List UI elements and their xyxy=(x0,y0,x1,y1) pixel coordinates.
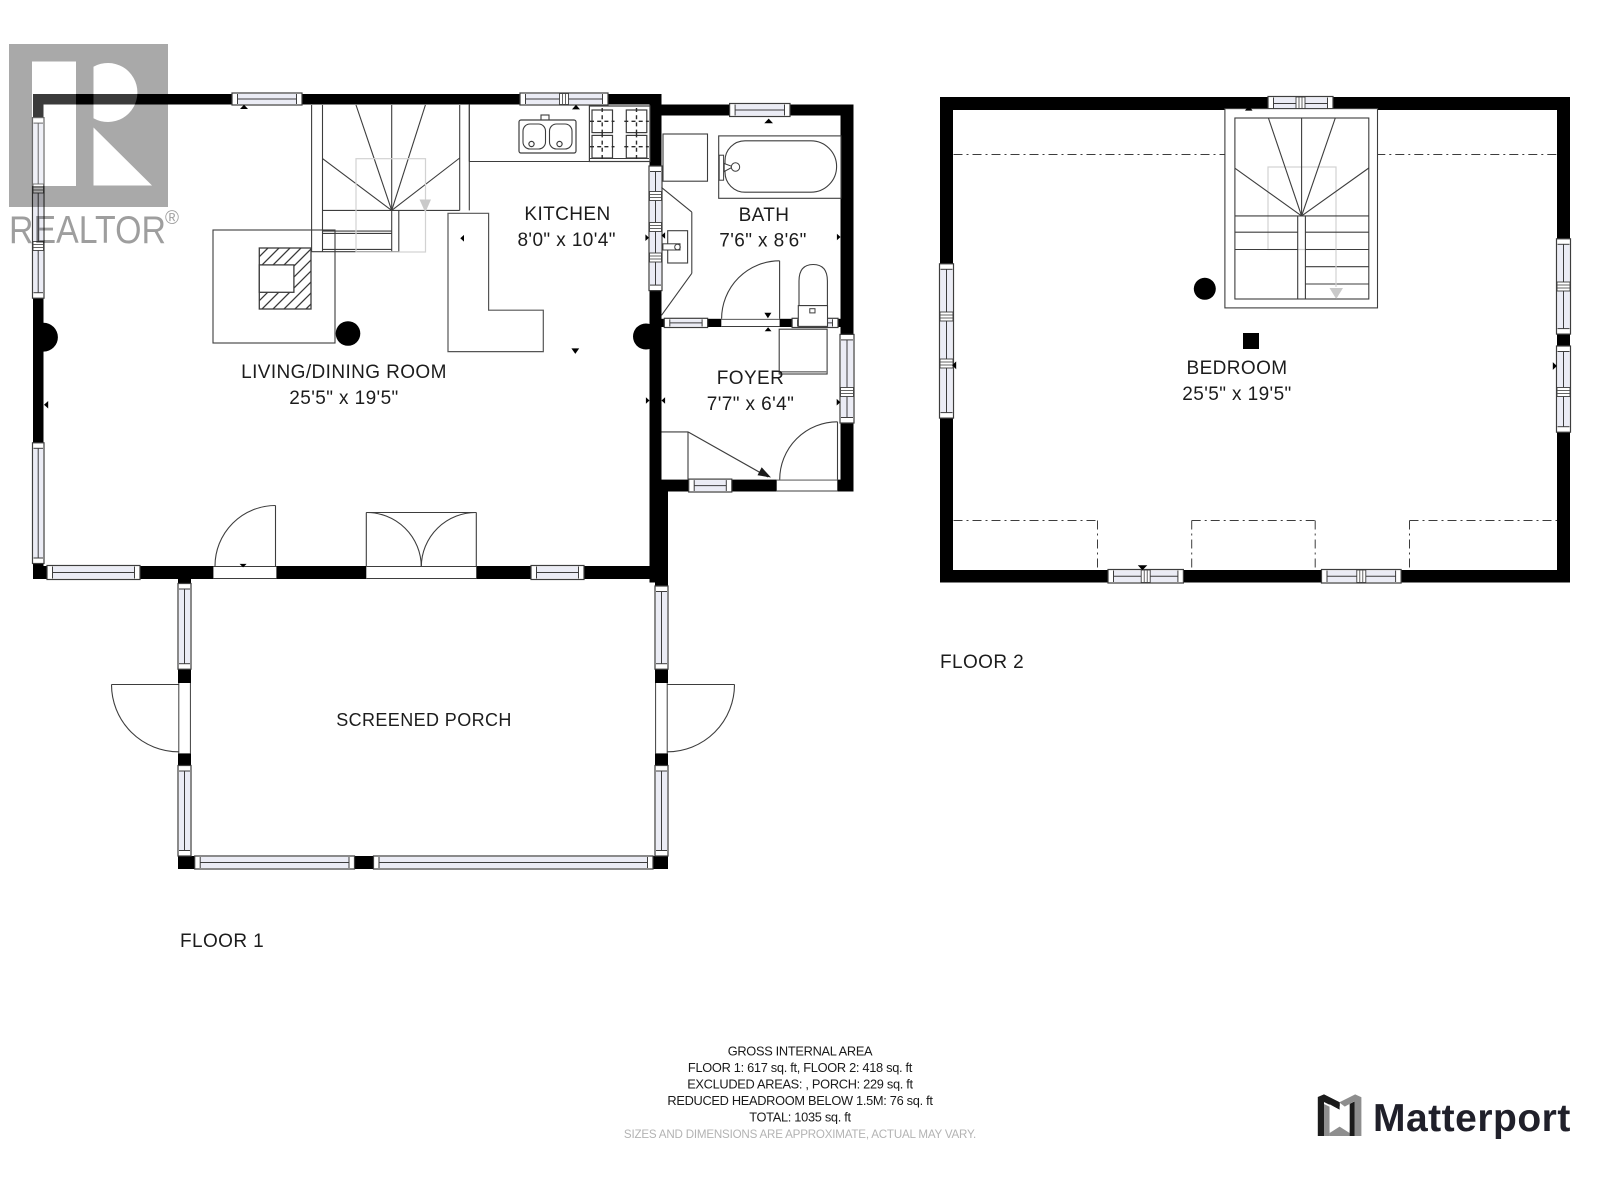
svg-text:BATH: BATH xyxy=(739,205,790,226)
svg-text:REDUCED HEADROOM BELOW 1.5M: 7: REDUCED HEADROOM BELOW 1.5M: 76 sq. ft xyxy=(667,1093,933,1108)
svg-text:LIVING/DINING ROOM: LIVING/DINING ROOM xyxy=(241,362,447,383)
svg-text:25'5" x 19'5": 25'5" x 19'5" xyxy=(289,388,398,409)
svg-text:FLOOR 1: FLOOR 1 xyxy=(180,931,264,952)
svg-text:Matterport: Matterport xyxy=(1373,1097,1571,1140)
svg-text:SIZES AND DIMENSIONS ARE APPRO: SIZES AND DIMENSIONS ARE APPROXIMATE, AC… xyxy=(624,1128,976,1141)
svg-text:FLOOR 2: FLOOR 2 xyxy=(940,652,1024,673)
svg-text:25'5" x 19'5": 25'5" x 19'5" xyxy=(1182,384,1291,405)
svg-text:SCREENED PORCH: SCREENED PORCH xyxy=(336,710,512,730)
svg-text:REALTOR: REALTOR xyxy=(9,209,166,252)
svg-text:BEDROOM: BEDROOM xyxy=(1187,358,1288,379)
svg-text:FOYER: FOYER xyxy=(717,368,784,389)
svg-text:®: ® xyxy=(165,208,179,229)
svg-text:TOTAL: 1035 sq. ft: TOTAL: 1035 sq. ft xyxy=(749,1110,851,1125)
svg-text:7'7" x 6'4": 7'7" x 6'4" xyxy=(707,394,794,415)
svg-text:FLOOR 1: 617 sq. ft, FLOOR 2:: FLOOR 1: 617 sq. ft, FLOOR 2: 418 sq. ft xyxy=(688,1060,913,1075)
svg-text:7'6" x 8'6": 7'6" x 8'6" xyxy=(719,231,806,252)
svg-text:KITCHEN: KITCHEN xyxy=(524,204,610,225)
svg-text:GROSS INTERNAL AREA: GROSS INTERNAL AREA xyxy=(728,1044,873,1059)
svg-text:EXCLUDED AREAS: , PORCH: 229 s: EXCLUDED AREAS: , PORCH: 229 sq. ft xyxy=(687,1077,913,1092)
svg-text:8'0" x 10'4": 8'0" x 10'4" xyxy=(517,230,615,251)
